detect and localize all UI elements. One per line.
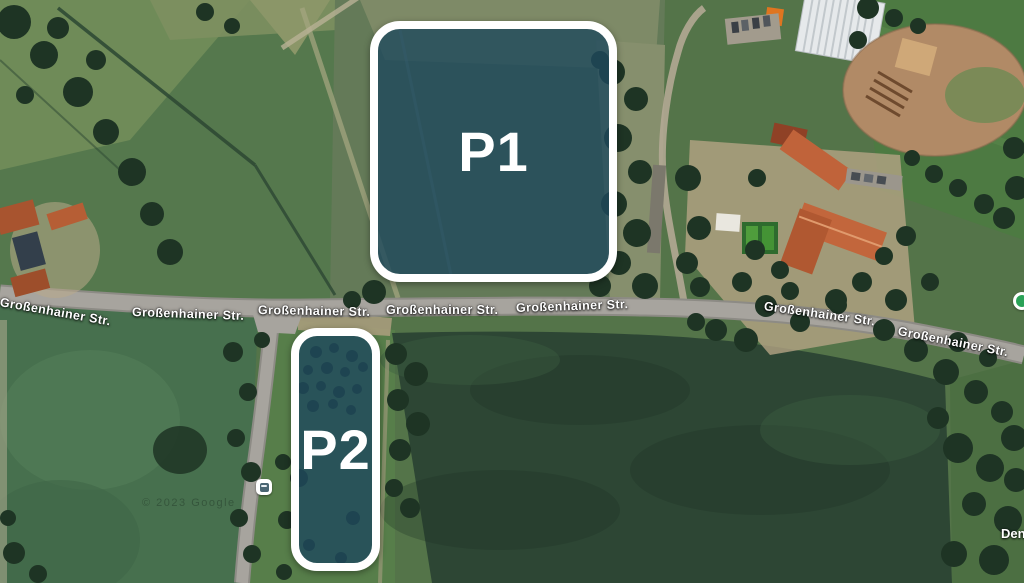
- zone-p1-label: P1: [458, 124, 529, 180]
- street-name-label: Großenhainer Str.: [386, 304, 498, 317]
- place-label-partial: Den: [1001, 527, 1024, 540]
- green-poi-dot[interactable]: [1013, 292, 1024, 310]
- imagery-watermark: © 2023 Google: [142, 498, 236, 509]
- satellite-map[interactable]: Großenhainer Str. Großenhainer Str. Groß…: [0, 0, 1024, 583]
- sports-track: [843, 24, 1024, 156]
- parking-zone-p1: P1: [370, 21, 617, 282]
- parking-zone-p2: P2: [291, 328, 380, 571]
- street-name-label: Großenhainer Str.: [258, 304, 371, 318]
- zone-p2-label: P2: [300, 422, 371, 478]
- bus-stop-icon[interactable]: [256, 479, 272, 495]
- bus-glyph: [260, 483, 269, 492]
